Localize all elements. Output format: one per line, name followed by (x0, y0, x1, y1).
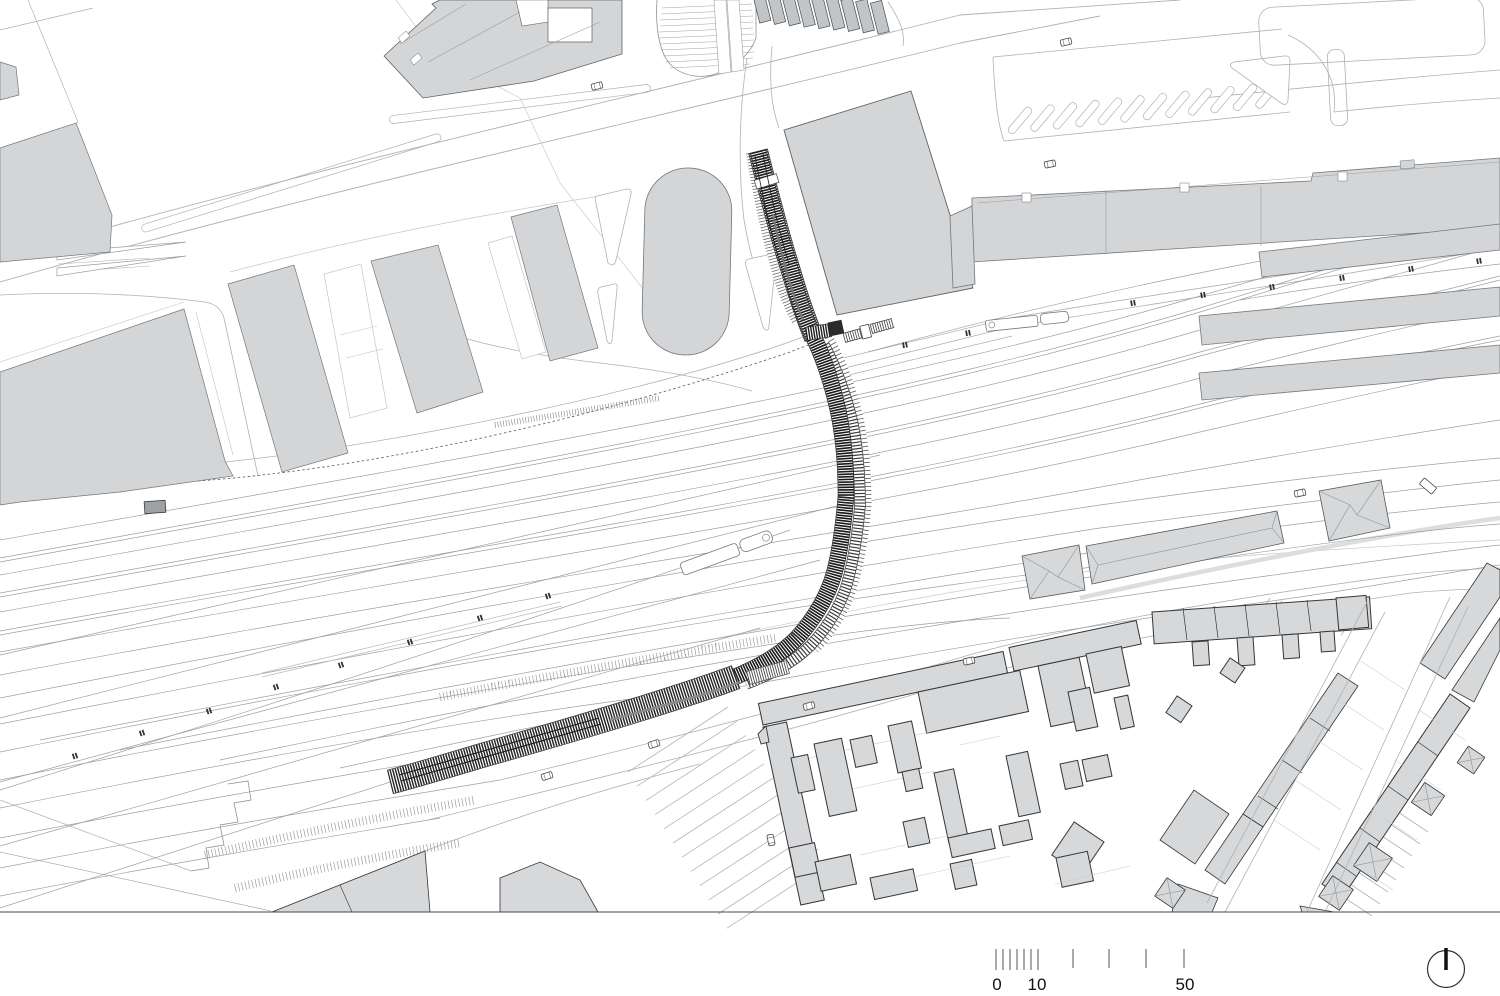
svg-text:10: 10 (1028, 975, 1047, 994)
svg-text:50: 50 (1176, 975, 1195, 994)
svg-text:0: 0 (992, 975, 1001, 994)
